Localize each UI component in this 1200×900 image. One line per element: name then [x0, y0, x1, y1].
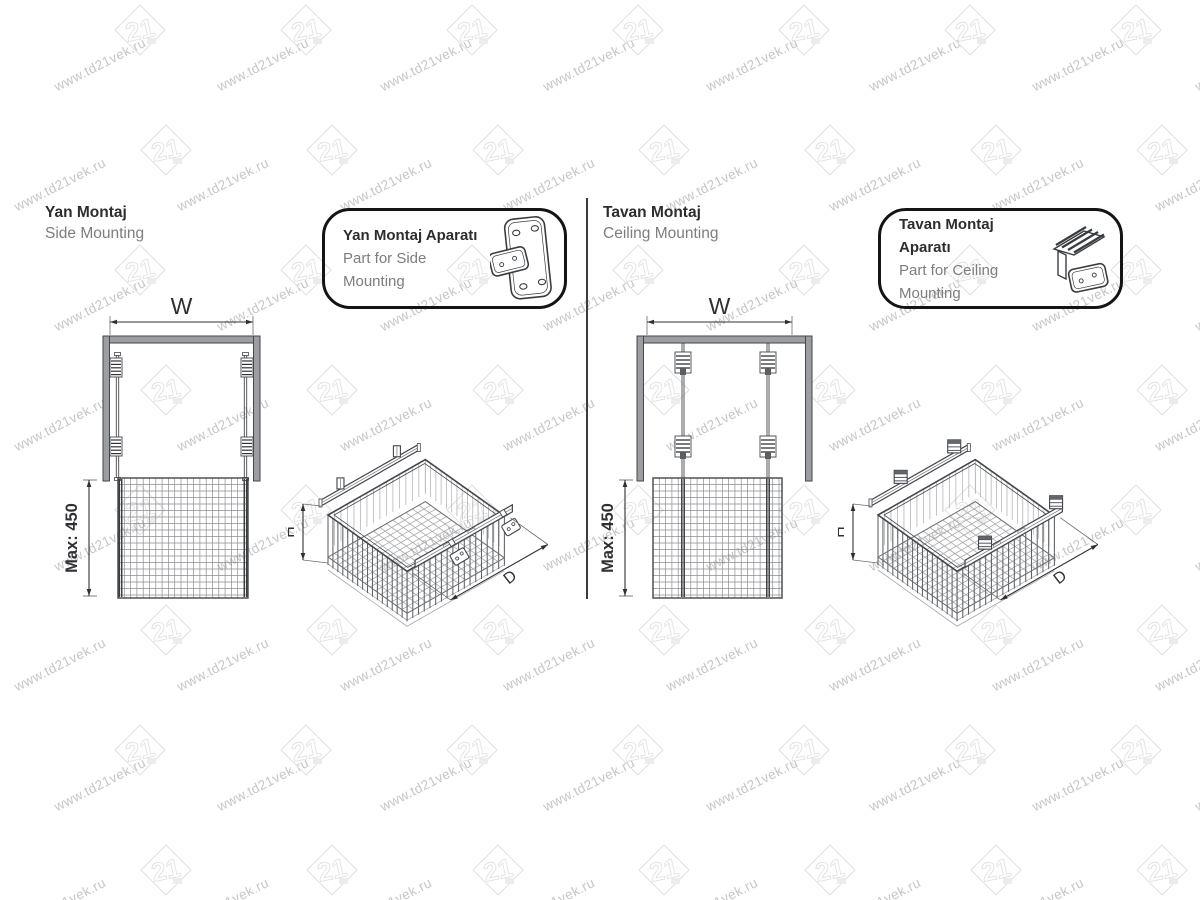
ceiling-part-callout: Tavan Montaj Aparatı Part for Ceiling Mo…: [878, 208, 1123, 309]
side-title-english: Side Mounting: [45, 223, 144, 244]
side-front-view-diagram: WMax: 450: [60, 295, 280, 605]
dimension-label-w: W: [709, 295, 731, 319]
side-part-label-turkish: Yan Montaj Aparatı: [343, 224, 490, 247]
dimension-label-w: W: [171, 295, 193, 319]
dimension-label-d: D: [1051, 567, 1071, 588]
diagram-content: Yan Montaj Side Mounting Yan Montaj Apar…: [0, 0, 1200, 900]
dimension-label-d: D: [501, 567, 521, 588]
side-part-label-english: Part for Side Mounting: [343, 247, 490, 293]
dimension-label-h: H: [288, 526, 298, 538]
page-root: www.td21vek.ruwww.td21vek.ruwww.td21vek.…: [0, 0, 1200, 900]
section-divider: [586, 198, 588, 599]
side-basket-3d-diagram: HD: [288, 430, 578, 630]
side-part-callout-text: Yan Montaj Aparatı Part for Side Mountin…: [325, 224, 490, 293]
side-mounting-title: Yan Montaj Side Mounting: [45, 202, 144, 244]
side-mount-part-icon: [490, 213, 554, 305]
ceiling-part-callout-text: Tavan Montaj Aparatı Part for Ceiling Mo…: [881, 213, 1046, 305]
side-title-turkish: Yan Montaj: [45, 202, 144, 223]
ceiling-part-label-english: Part for Ceiling Mounting: [899, 259, 1046, 305]
ceiling-title-turkish: Tavan Montaj: [603, 202, 718, 223]
ceiling-part-label-turkish: Tavan Montaj Aparatı: [899, 213, 1046, 259]
ceiling-front-view-diagram: WMax: 450: [595, 295, 815, 605]
ceiling-mounting-title: Tavan Montaj Ceiling Mounting: [603, 202, 718, 244]
side-part-callout: Yan Montaj Aparatı Part for Side Mountin…: [322, 208, 567, 309]
ceiling-basket-3d-diagram: HD: [838, 430, 1128, 630]
dimension-label-h: H: [838, 526, 848, 538]
ceiling-title-english: Ceiling Mounting: [603, 223, 718, 244]
ceiling-mount-part-icon: [1046, 213, 1110, 305]
dimension-label-max-height: Max: 450: [63, 503, 81, 573]
dimension-label-max-height: Max: 450: [599, 503, 617, 573]
